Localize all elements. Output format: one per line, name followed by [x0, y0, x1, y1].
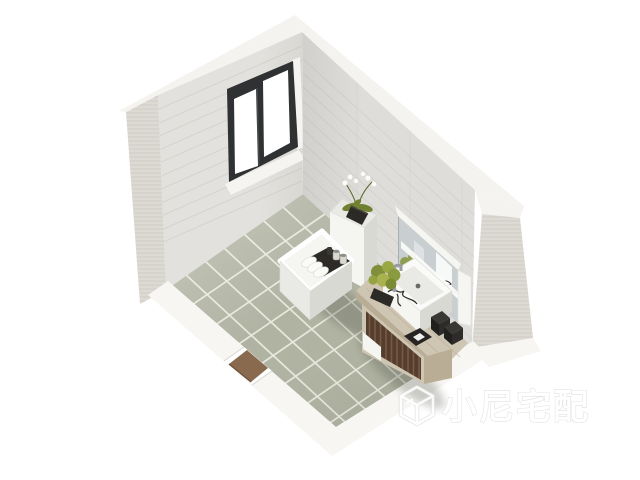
window-pane-right	[263, 70, 290, 157]
window-pane-left	[234, 89, 258, 174]
watermark-text: 小尼宅配	[442, 387, 590, 428]
sink-drain	[416, 284, 421, 289]
bathroom-3d-scene: green-grey tiled floor tiled wall	[0, 0, 640, 480]
render-canvas: green-grey tiled floor tiled wall	[0, 0, 640, 480]
mirror-side-panel	[458, 270, 471, 326]
